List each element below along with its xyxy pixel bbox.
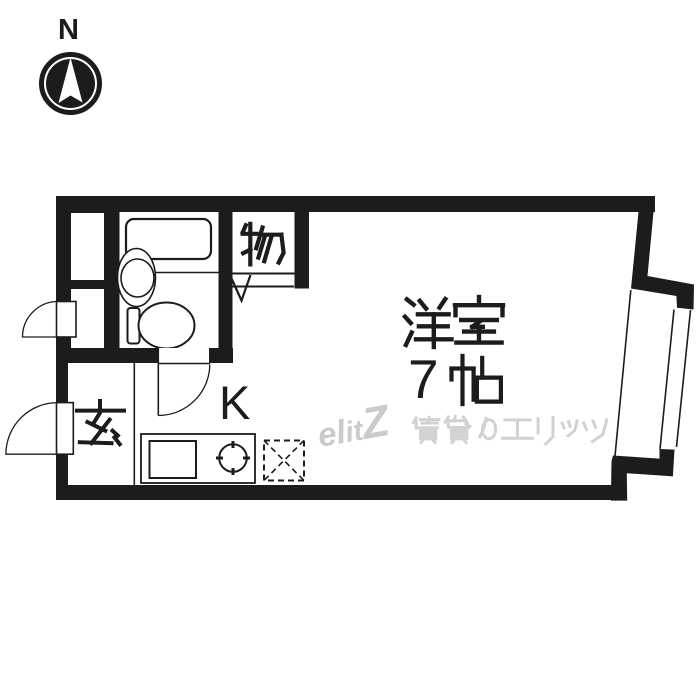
- svg-text:7: 7: [408, 348, 439, 410]
- svg-text:N: N: [58, 14, 79, 46]
- svg-text:K: K: [219, 376, 250, 429]
